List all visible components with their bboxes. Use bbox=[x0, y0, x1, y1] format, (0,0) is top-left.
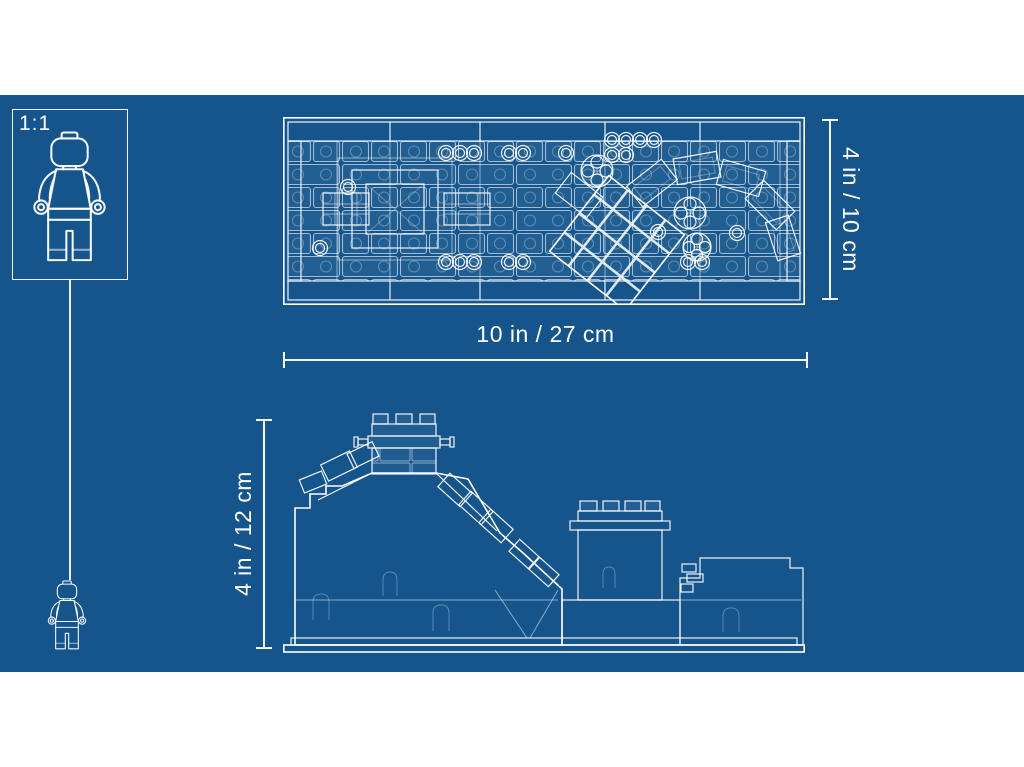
side-view-height-dimension-label: 4 in / 12 cm bbox=[228, 419, 258, 649]
top-view-drawing bbox=[283, 117, 805, 305]
width-dimension-line bbox=[283, 352, 808, 368]
dimension-line bbox=[283, 359, 808, 361]
width-dimension-label: 10 in / 27 cm bbox=[283, 321, 808, 348]
blueprint-page: 1:1 bbox=[0, 0, 1024, 767]
minifigure-outline-icon bbox=[30, 131, 109, 262]
side-view-height-dimension-line bbox=[256, 419, 272, 649]
dimension-line bbox=[829, 119, 831, 300]
top-view-height-dimension-label: 4 in / 10 cm bbox=[836, 119, 866, 300]
blueprint-canvas: 1:1 bbox=[0, 95, 1024, 672]
side-view-drawing bbox=[283, 406, 805, 654]
scale-connector-line bbox=[69, 280, 71, 580]
minifigure-outline-small-icon bbox=[46, 580, 88, 650]
minifigure-scale-box: 1:1 bbox=[12, 109, 128, 280]
dimension-cap bbox=[256, 647, 272, 649]
dimension-cap bbox=[806, 352, 808, 368]
dimension-line bbox=[263, 419, 265, 649]
